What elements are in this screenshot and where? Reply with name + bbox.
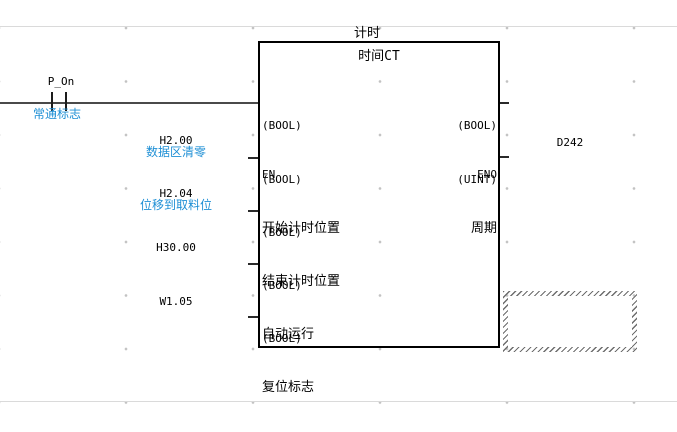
operand-group-h2-04[interactable]: H2.04 位移到取料位 <box>110 188 242 212</box>
rung-separator-bottom <box>0 401 677 402</box>
pin-stub <box>248 157 258 159</box>
operand-text[interactable]: H30.00 <box>110 242 242 253</box>
selection-cursor-inner <box>508 296 632 347</box>
pin-stub <box>248 210 258 212</box>
fb-pin-reset-flag-type: (BOOL) <box>262 334 314 344</box>
operand-text[interactable]: W1.05 <box>110 296 242 307</box>
pin-stub <box>500 156 509 158</box>
operand-group-d242[interactable]: D242 <box>506 137 634 148</box>
operand-comment: 位移到取料位 <box>110 199 242 212</box>
fb-pin-end-timing-type: (BOOL) <box>262 228 340 238</box>
pin-stub <box>248 263 258 265</box>
fb-pin-cycle-type: (UINT) <box>457 175 497 185</box>
operand-group-h2-00[interactable]: H2.00 数据区清零 <box>110 135 242 159</box>
fb-instance-name[interactable]: 计时 <box>246 27 488 40</box>
operand-group-w1-05[interactable]: W1.05 <box>110 296 242 307</box>
contact-comment: 常通标志 <box>7 108 107 121</box>
fb-pin-cycle: (UINT) 周期 <box>457 137 497 273</box>
power-rail-wire <box>0 102 259 104</box>
fb-pin-start-timing-type: (BOOL) <box>262 175 340 185</box>
fb-pin-reset-flag: (BOOL) 复位标志 <box>262 296 314 432</box>
contact-operand[interactable]: P_On <box>11 76 111 87</box>
pin-stub <box>500 102 509 104</box>
fb-pin-reset-flag-name: 复位标志 <box>262 381 314 394</box>
operand-comment: 数据区清零 <box>110 146 242 159</box>
pin-stub <box>248 316 258 318</box>
fb-definition-name: 时间CT <box>258 50 500 63</box>
fb-pin-en-type: (BOOL) <box>262 121 302 131</box>
ladder-editor-canvas: P_On 常通标志 计时 时间CT (BOOL) EN (BOOL) 开始计时位… <box>0 0 677 432</box>
selection-cursor[interactable] <box>503 291 637 352</box>
fb-pin-auto-run-type: (BOOL) <box>262 281 314 291</box>
fb-pin-eno-type: (BOOL) <box>457 121 497 131</box>
fb-pin-cycle-name: 周期 <box>457 222 497 235</box>
operand-group-h30-00[interactable]: H30.00 <box>110 242 242 253</box>
